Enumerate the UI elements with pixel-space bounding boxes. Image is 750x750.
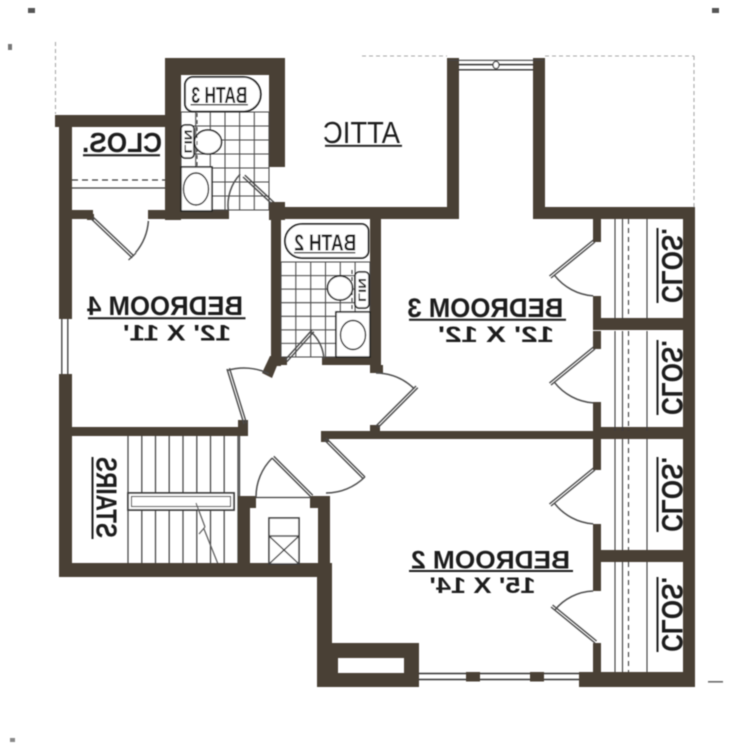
svg-text:CLOS.: CLOS. bbox=[655, 228, 688, 303]
svg-text:STAIRS: STAIRS bbox=[90, 457, 122, 538]
svg-text:CLOS.: CLOS. bbox=[82, 127, 162, 158]
svg-text:BEDROOM 3: BEDROOM 3 bbox=[407, 293, 563, 323]
svg-text:BEDROOM 4: BEDROOM 4 bbox=[87, 291, 243, 321]
svg-text:CLOS.: CLOS. bbox=[655, 457, 688, 532]
svg-text:12' X 11': 12' X 11' bbox=[123, 321, 231, 346]
svg-text:CLOS.: CLOS. bbox=[655, 340, 688, 415]
svg-text:LIN: LIN bbox=[356, 278, 368, 302]
svg-text:CLOS.: CLOS. bbox=[655, 577, 688, 652]
svg-text:ATTIC: ATTIC bbox=[323, 115, 400, 150]
svg-text:LIN: LIN bbox=[182, 129, 194, 153]
svg-text:15' X 14': 15' X 14' bbox=[430, 573, 536, 598]
svg-text:BATH 3: BATH 3 bbox=[191, 82, 247, 108]
svg-text:12' X 12': 12' X 12' bbox=[438, 322, 554, 347]
svg-text:BATH 2: BATH 2 bbox=[294, 230, 356, 256]
